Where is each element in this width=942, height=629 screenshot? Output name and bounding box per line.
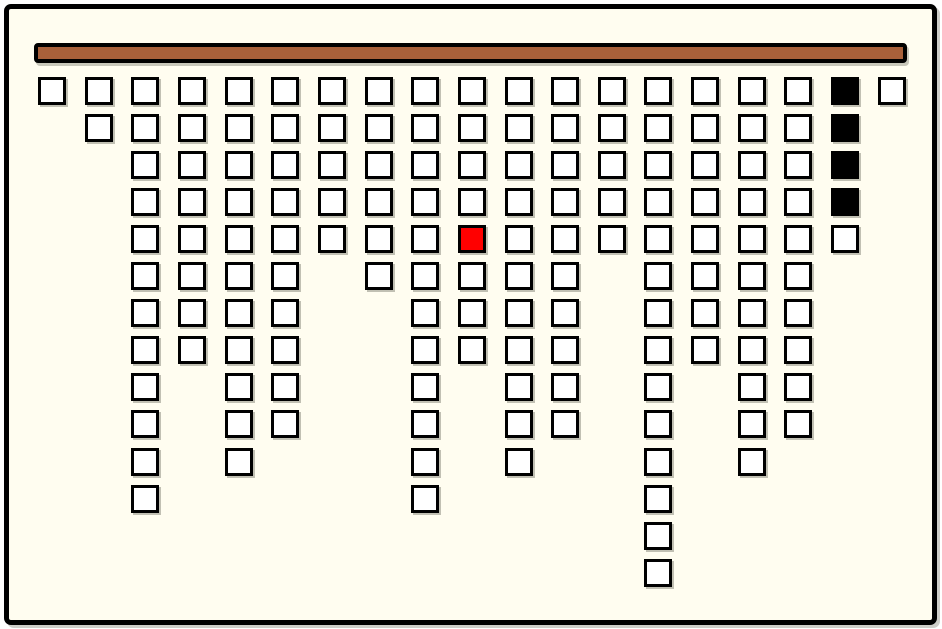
tile[interactable] (318, 77, 346, 105)
tile[interactable] (411, 225, 439, 253)
tile[interactable] (178, 77, 206, 105)
tile[interactable] (551, 114, 579, 142)
tile[interactable] (458, 77, 486, 105)
tile[interactable] (691, 188, 719, 216)
tile[interactable] (271, 151, 299, 179)
tile[interactable] (411, 336, 439, 364)
tile[interactable] (505, 77, 533, 105)
tile[interactable] (225, 262, 253, 290)
tile[interactable] (85, 77, 113, 105)
tile[interactable] (505, 336, 533, 364)
tile[interactable] (738, 225, 766, 253)
tile[interactable] (458, 262, 486, 290)
tile[interactable] (225, 410, 253, 438)
tile[interactable] (784, 77, 812, 105)
tile[interactable] (784, 373, 812, 401)
tile[interactable] (365, 151, 393, 179)
tile[interactable] (505, 262, 533, 290)
tile[interactable] (644, 485, 672, 513)
tile[interactable] (691, 299, 719, 327)
tile[interactable] (131, 448, 159, 476)
tile[interactable] (411, 485, 439, 513)
tile[interactable] (318, 225, 346, 253)
tile[interactable] (225, 114, 253, 142)
tile[interactable] (784, 188, 812, 216)
tile[interactable] (271, 225, 299, 253)
tile[interactable] (878, 77, 906, 105)
tile[interactable] (738, 336, 766, 364)
tile[interactable] (411, 373, 439, 401)
tile[interactable] (131, 188, 159, 216)
tile[interactable] (131, 485, 159, 513)
tile[interactable] (225, 188, 253, 216)
tile[interactable] (598, 151, 626, 179)
tile[interactable] (691, 225, 719, 253)
tile[interactable] (738, 448, 766, 476)
tile[interactable] (85, 114, 113, 142)
tile[interactable] (691, 262, 719, 290)
tile[interactable] (458, 299, 486, 327)
tile[interactable] (691, 114, 719, 142)
tile[interactable] (505, 225, 533, 253)
tile[interactable] (178, 225, 206, 253)
tile[interactable] (691, 336, 719, 364)
tile[interactable] (411, 114, 439, 142)
tile[interactable] (365, 262, 393, 290)
tile[interactable] (178, 151, 206, 179)
tile[interactable] (784, 336, 812, 364)
tile[interactable] (738, 77, 766, 105)
tile[interactable] (178, 114, 206, 142)
tile[interactable] (644, 522, 672, 550)
tile[interactable] (271, 299, 299, 327)
black-tile[interactable] (831, 114, 859, 142)
tile[interactable] (271, 262, 299, 290)
tile[interactable] (225, 373, 253, 401)
tile[interactable] (458, 188, 486, 216)
tile[interactable] (365, 188, 393, 216)
tile[interactable] (505, 188, 533, 216)
tile[interactable] (225, 225, 253, 253)
tile[interactable] (411, 151, 439, 179)
tile[interactable] (131, 77, 159, 105)
tile[interactable] (271, 188, 299, 216)
tile[interactable] (178, 336, 206, 364)
black-tile[interactable] (831, 188, 859, 216)
tile[interactable] (644, 114, 672, 142)
tile[interactable] (551, 225, 579, 253)
tile[interactable] (411, 77, 439, 105)
tile[interactable] (505, 151, 533, 179)
black-tile[interactable] (831, 151, 859, 179)
tile[interactable] (505, 299, 533, 327)
tile[interactable] (131, 114, 159, 142)
tile[interactable] (131, 225, 159, 253)
tile[interactable] (411, 410, 439, 438)
tile[interactable] (598, 114, 626, 142)
tile[interactable] (271, 373, 299, 401)
tile[interactable] (784, 114, 812, 142)
tile[interactable] (644, 77, 672, 105)
tile[interactable] (598, 225, 626, 253)
tile[interactable] (178, 188, 206, 216)
tile[interactable] (271, 114, 299, 142)
tile[interactable] (644, 559, 672, 587)
tile[interactable] (131, 336, 159, 364)
tile[interactable] (738, 410, 766, 438)
tile[interactable] (551, 151, 579, 179)
tile[interactable] (271, 410, 299, 438)
tile[interactable] (784, 151, 812, 179)
tile[interactable] (458, 114, 486, 142)
tile[interactable] (551, 410, 579, 438)
tile[interactable] (784, 262, 812, 290)
tile[interactable] (644, 448, 672, 476)
tile[interactable] (784, 410, 812, 438)
tile[interactable] (225, 77, 253, 105)
tile[interactable] (738, 373, 766, 401)
tile[interactable] (131, 262, 159, 290)
tile[interactable] (411, 188, 439, 216)
tile[interactable] (738, 299, 766, 327)
tile[interactable] (225, 448, 253, 476)
tile[interactable] (271, 77, 299, 105)
tile[interactable] (738, 114, 766, 142)
tile[interactable] (225, 336, 253, 364)
tile[interactable] (644, 262, 672, 290)
tile[interactable] (644, 373, 672, 401)
tile[interactable] (691, 77, 719, 105)
tile[interactable] (505, 373, 533, 401)
tile[interactable] (411, 448, 439, 476)
tile[interactable] (131, 410, 159, 438)
tile[interactable] (458, 336, 486, 364)
tile[interactable] (458, 151, 486, 179)
top-bar (34, 43, 907, 63)
tile[interactable] (784, 299, 812, 327)
tile[interactable] (551, 262, 579, 290)
tile[interactable] (551, 77, 579, 105)
tile[interactable] (784, 225, 812, 253)
tile[interactable] (644, 188, 672, 216)
tile[interactable] (738, 262, 766, 290)
tile[interactable] (644, 299, 672, 327)
tile[interactable] (551, 373, 579, 401)
tile[interactable] (318, 151, 346, 179)
tile[interactable] (551, 299, 579, 327)
black-tile[interactable] (831, 77, 859, 105)
tile[interactable] (738, 188, 766, 216)
tile[interactable] (318, 114, 346, 142)
tile[interactable] (551, 336, 579, 364)
tile[interactable] (551, 188, 579, 216)
tile[interactable] (831, 225, 859, 253)
tile[interactable] (691, 151, 719, 179)
tile[interactable] (598, 77, 626, 105)
tile[interactable] (131, 299, 159, 327)
red-tile[interactable] (458, 225, 486, 253)
tile[interactable] (644, 410, 672, 438)
tile[interactable] (225, 151, 253, 179)
game-stage (0, 0, 942, 629)
tile[interactable] (131, 151, 159, 179)
tile[interactable] (365, 225, 393, 253)
tile[interactable] (271, 336, 299, 364)
tile[interactable] (38, 77, 66, 105)
tile[interactable] (225, 299, 253, 327)
tile[interactable] (318, 188, 346, 216)
tile[interactable] (411, 262, 439, 290)
tile[interactable] (365, 114, 393, 142)
tile[interactable] (644, 336, 672, 364)
tile[interactable] (505, 410, 533, 438)
tile[interactable] (178, 299, 206, 327)
tile[interactable] (365, 77, 393, 105)
tile[interactable] (505, 114, 533, 142)
tile[interactable] (644, 225, 672, 253)
tile[interactable] (131, 373, 159, 401)
tile[interactable] (411, 299, 439, 327)
tile[interactable] (738, 151, 766, 179)
tile[interactable] (598, 188, 626, 216)
tile[interactable] (178, 262, 206, 290)
tile[interactable] (644, 151, 672, 179)
tile[interactable] (505, 448, 533, 476)
